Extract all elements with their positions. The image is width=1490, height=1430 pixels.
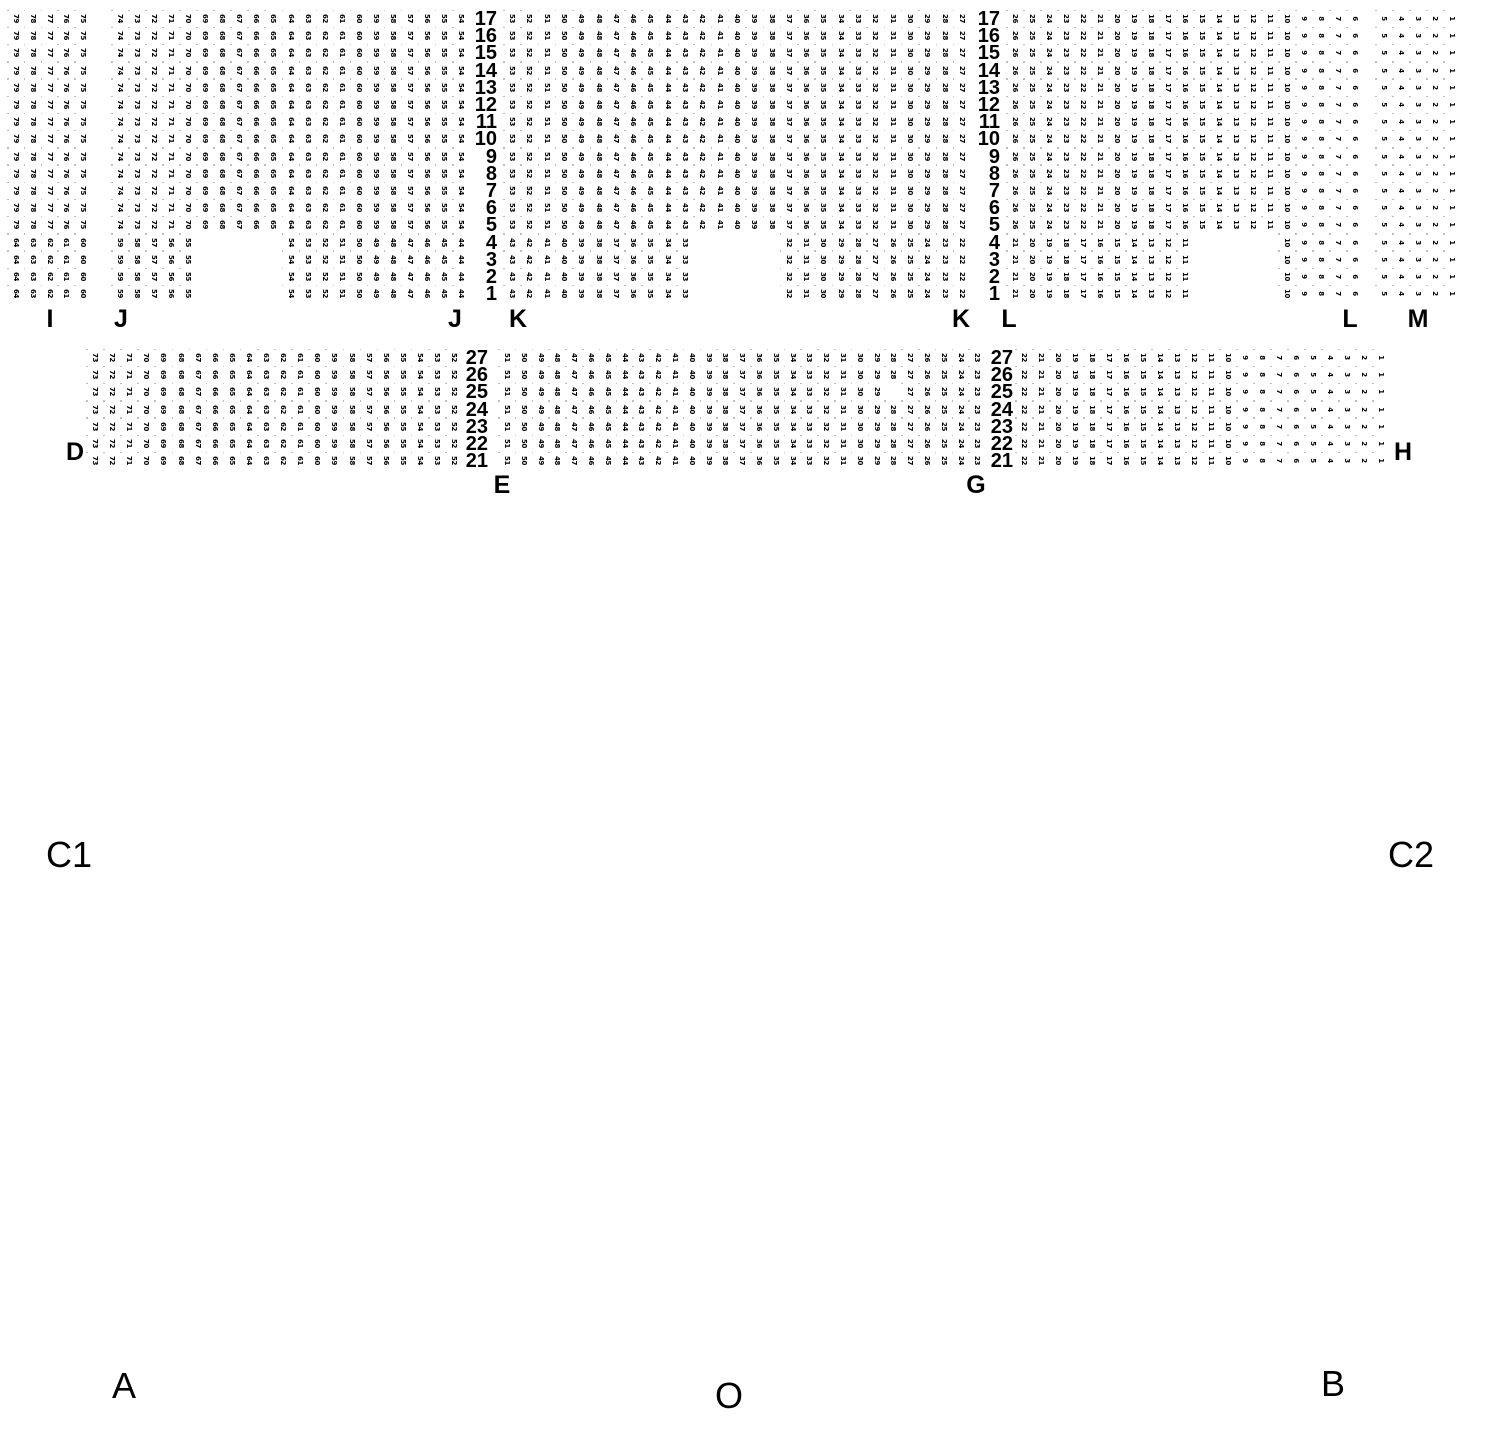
seat-EG-r23-n44[interactable]: 44 (617, 420, 632, 433)
area-label-c1[interactable]: C1 (46, 837, 92, 873)
seat-D-r27-n55[interactable]: 55 (395, 351, 410, 364)
seat-J-r2-n55[interactable]: 55 (180, 270, 195, 283)
seat-K-r2-n22[interactable]: 22 (954, 270, 969, 283)
seat-J-r12-n62[interactable]: 62 (317, 98, 332, 111)
seat-I-r17-n76[interactable]: 76 (58, 12, 73, 25)
seat-J-r9-n56[interactable]: 56 (419, 150, 434, 163)
seat-EG-r23-n31[interactable]: 31 (835, 420, 850, 433)
seat-H-r27-n7[interactable]: 7 (1271, 351, 1286, 364)
seat-K-r10-n38[interactable]: 38 (764, 132, 779, 145)
seat-D-r22-n72[interactable]: 72 (104, 437, 119, 450)
seat-M-r9-n2[interactable]: 2 (1427, 150, 1442, 163)
seat-I-r13-n75[interactable]: 75 (75, 81, 90, 94)
seat-D-r25-n70[interactable]: 70 (138, 385, 153, 398)
seat-L-r9-n23[interactable]: 23 (1058, 150, 1073, 163)
seat-I-r6-n75[interactable]: 75 (75, 201, 90, 214)
seat-J-r8-n60[interactable]: 60 (351, 167, 366, 180)
seat-I-r17-n77[interactable]: 77 (42, 12, 57, 25)
seat-L-r5-n14[interactable]: 14 (1211, 218, 1226, 231)
seat-K-r11-n42[interactable]: 42 (694, 115, 709, 128)
seat-K-r15-n50[interactable]: 50 (556, 46, 571, 59)
seat-L-r11-n26[interactable]: 26 (1007, 115, 1022, 128)
seat-EG-r26-n41[interactable]: 41 (667, 368, 682, 381)
seat-EG-r22-n35[interactable]: 35 (768, 437, 783, 450)
seat-EG-r23-n45[interactable]: 45 (600, 420, 615, 433)
seat-L-r10-n19[interactable]: 19 (1126, 132, 1141, 145)
seat-H-r21-n9[interactable]: 9 (1237, 454, 1252, 467)
seat-L-r17-n12[interactable]: 12 (1245, 12, 1260, 25)
seat-EG-r21-n29[interactable]: 29 (869, 454, 884, 467)
seat-H-r26-n12[interactable]: 12 (1186, 368, 1201, 381)
seat-D-r25-n65[interactable]: 65 (224, 385, 239, 398)
seat-J-r14-n68[interactable]: 68 (214, 64, 229, 77)
seat-H-r23-n11[interactable]: 11 (1203, 420, 1218, 433)
seat-M-r11-n4[interactable]: 4 (1393, 115, 1408, 128)
seat-K-r4-n22[interactable]: 22 (954, 236, 969, 249)
seat-L-r3-n12[interactable]: 12 (1160, 253, 1175, 266)
seat-H-r23-n4[interactable]: 4 (1322, 420, 1337, 433)
seat-L-r6-n19[interactable]: 19 (1126, 201, 1141, 214)
seat-K-r7-n45[interactable]: 45 (642, 184, 657, 197)
seat-EG-r21-n50[interactable]: 50 (516, 454, 531, 467)
seat-M-r4-n3[interactable]: 3 (1410, 236, 1425, 249)
seat-L-r14-n23[interactable]: 23 (1058, 64, 1073, 77)
seat-K-r16-n38[interactable]: 38 (764, 29, 779, 42)
seat-I-r8-n78[interactable]: 78 (25, 167, 40, 180)
seat-J-r16-n73[interactable]: 73 (129, 29, 144, 42)
seat-J-r3-n52[interactable]: 52 (317, 253, 332, 266)
seat-L-r7-n16[interactable]: 16 (1177, 184, 1192, 197)
seat-J-r4-n56[interactable]: 56 (163, 236, 178, 249)
seat-K-r6-n47[interactable]: 47 (608, 201, 623, 214)
seat-L-r5-n19[interactable]: 19 (1126, 218, 1141, 231)
seat-M-r15-n3[interactable]: 3 (1410, 46, 1425, 59)
seat-EG-r25-n27[interactable]: 27 (902, 385, 917, 398)
seat-L-r2-n21[interactable]: 21 (1007, 270, 1022, 283)
seat-D-r25-n53[interactable]: 53 (429, 385, 444, 398)
seat-M-r4-n4[interactable]: 4 (1393, 236, 1408, 249)
seat-EG-r25-n29[interactable]: 29 (869, 385, 884, 398)
seat-H-r21-n3[interactable]: 3 (1339, 454, 1354, 467)
seat-I-r13-n78[interactable]: 78 (25, 81, 40, 94)
seat-J-r7-n72[interactable]: 72 (146, 184, 161, 197)
seat-J-r8-n69[interactable]: 69 (197, 167, 212, 180)
seat-H-r25-n3[interactable]: 3 (1339, 385, 1354, 398)
seat-I-r14-n78[interactable]: 78 (25, 64, 40, 77)
seat-K-r9-n40[interactable]: 40 (729, 150, 744, 163)
seat-D-r26-n58[interactable]: 58 (344, 368, 359, 381)
seat-K-r16-n51[interactable]: 51 (539, 29, 554, 42)
seat-K-r10-n29[interactable]: 29 (919, 132, 934, 145)
seat-D-r26-n56[interactable]: 56 (378, 368, 393, 381)
seat-L-r13-n10[interactable]: 10 (1279, 81, 1294, 94)
seat-M-r1-n3[interactable]: 3 (1410, 287, 1425, 300)
seat-K-r13-n40[interactable]: 40 (729, 81, 744, 94)
seat-K-r1-n40[interactable]: 40 (556, 287, 571, 300)
seat-J-r6-n62[interactable]: 62 (317, 201, 332, 214)
seat-H-r27-n13[interactable]: 13 (1169, 351, 1184, 364)
seat-K-r15-n53[interactable]: 53 (504, 46, 519, 59)
seat-D-r22-n62[interactable]: 62 (275, 437, 290, 450)
seat-K-r16-n29[interactable]: 29 (919, 29, 934, 42)
seat-J-r5-n66[interactable]: 66 (248, 218, 263, 231)
seat-K-r15-n44[interactable]: 44 (660, 46, 675, 59)
seat-L-r3-n7[interactable]: 7 (1330, 253, 1345, 266)
seat-K-r3-n33[interactable]: 33 (677, 253, 692, 266)
seat-K-r17-n44[interactable]: 44 (660, 12, 675, 25)
section-label-d-0[interactable]: D (66, 440, 84, 465)
seat-L-r1-n12[interactable]: 12 (1160, 287, 1175, 300)
seat-L-r13-n25[interactable]: 25 (1024, 81, 1039, 94)
seat-I-r3-n64[interactable]: 64 (8, 253, 23, 266)
seat-L-r11-n12[interactable]: 12 (1245, 115, 1260, 128)
seat-L-r6-n6[interactable]: 6 (1347, 201, 1362, 214)
seat-EG-r26-n49[interactable]: 49 (533, 368, 548, 381)
seat-L-r10-n9[interactable]: 9 (1296, 132, 1311, 145)
seat-D-r25-n64[interactable]: 64 (241, 385, 256, 398)
seat-D-r22-n52[interactable]: 52 (446, 437, 461, 450)
seat-K-r11-n52[interactable]: 52 (521, 115, 536, 128)
seat-K-r1-n34[interactable]: 34 (660, 287, 675, 300)
seat-I-r11-n79[interactable]: 79 (8, 115, 23, 128)
seat-J-r10-n72[interactable]: 72 (146, 132, 161, 145)
seat-H-r26-n10[interactable]: 10 (1220, 368, 1235, 381)
seat-L-r1-n10[interactable]: 10 (1279, 287, 1294, 300)
seat-J-r8-n54[interactable]: 54 (453, 167, 468, 180)
seat-K-r16-n28[interactable]: 28 (937, 29, 952, 42)
seat-L-r3-n16[interactable]: 16 (1092, 253, 1107, 266)
seat-J-r14-n69[interactable]: 69 (197, 64, 212, 77)
seat-J-r7-n58[interactable]: 58 (385, 184, 400, 197)
seat-K-r4-n25[interactable]: 25 (902, 236, 917, 249)
seat-K-r17-n40[interactable]: 40 (729, 12, 744, 25)
seat-L-r14-n24[interactable]: 24 (1041, 64, 1056, 77)
seat-K-r13-n53[interactable]: 53 (504, 81, 519, 94)
seat-J-r2-n49[interactable]: 49 (368, 270, 383, 283)
seat-D-r25-n61[interactable]: 61 (292, 385, 307, 398)
seat-L-r6-n23[interactable]: 23 (1058, 201, 1073, 214)
seat-K-r1-n38[interactable]: 38 (591, 287, 606, 300)
seat-J-r13-n72[interactable]: 72 (146, 81, 161, 94)
seat-J-r14-n73[interactable]: 73 (129, 64, 144, 77)
seat-K-r5-n28[interactable]: 28 (937, 218, 952, 231)
seat-K-r10-n50[interactable]: 50 (556, 132, 571, 145)
seat-J-r9-n74[interactable]: 74 (112, 150, 127, 163)
seat-L-r9-n17[interactable]: 17 (1160, 150, 1175, 163)
seat-H-r24-n4[interactable]: 4 (1322, 403, 1337, 416)
seat-L-r16-n6[interactable]: 6 (1347, 29, 1362, 42)
seat-K-r9-n30[interactable]: 30 (902, 150, 917, 163)
seat-K-r12-n37[interactable]: 37 (781, 98, 796, 111)
seat-K-r10-n41[interactable]: 41 (712, 132, 727, 145)
seat-K-r13-n48[interactable]: 48 (591, 81, 606, 94)
seat-J-r11-n68[interactable]: 68 (214, 115, 229, 128)
seat-K-r17-n48[interactable]: 48 (591, 12, 606, 25)
seat-J-r14-n67[interactable]: 67 (231, 64, 246, 77)
seat-EG-r22-n38[interactable]: 38 (717, 437, 732, 450)
seat-J-r16-n58[interactable]: 58 (385, 29, 400, 42)
seat-K-r11-n50[interactable]: 50 (556, 115, 571, 128)
seat-EG-r24-n39[interactable]: 39 (701, 403, 716, 416)
seat-K-r8-n35[interactable]: 35 (815, 167, 830, 180)
seat-D-r22-n65[interactable]: 65 (224, 437, 239, 450)
seat-K-r14-n48[interactable]: 48 (591, 64, 606, 77)
seat-J-r1-n44[interactable]: 44 (453, 287, 468, 300)
seat-L-r1-n14[interactable]: 14 (1126, 287, 1141, 300)
seat-J-r12-n74[interactable]: 74 (112, 98, 127, 111)
seat-J-r17-n61[interactable]: 61 (334, 12, 349, 25)
seat-L-r15-n9[interactable]: 9 (1296, 46, 1311, 59)
seat-L-r17-n25[interactable]: 25 (1024, 12, 1039, 25)
seat-L-r12-n9[interactable]: 9 (1296, 98, 1311, 111)
seat-EG-r27-n24[interactable]: 24 (953, 351, 968, 364)
seat-L-r6-n15[interactable]: 15 (1194, 201, 1209, 214)
seat-EG-r21-n44[interactable]: 44 (617, 454, 632, 467)
seat-L-r7-n6[interactable]: 6 (1347, 184, 1362, 197)
seat-L-r7-n20[interactable]: 20 (1109, 184, 1124, 197)
seat-L-r14-n9[interactable]: 9 (1296, 64, 1311, 77)
seat-L-r1-n7[interactable]: 7 (1330, 287, 1345, 300)
seat-EG-r21-n23[interactable]: 23 (969, 454, 984, 467)
seat-J-r2-n50[interactable]: 50 (351, 270, 366, 283)
seat-K-r16-n48[interactable]: 48 (591, 29, 606, 42)
seat-D-r27-n62[interactable]: 62 (275, 351, 290, 364)
seat-L-r6-n11[interactable]: 11 (1262, 201, 1277, 214)
seat-EG-r27-n39[interactable]: 39 (701, 351, 716, 364)
seat-K-r12-n49[interactable]: 49 (573, 98, 588, 111)
seat-H-r27-n11[interactable]: 11 (1203, 351, 1218, 364)
seat-H-r27-n1[interactable]: 1 (1373, 351, 1388, 364)
seat-L-r14-n21[interactable]: 21 (1092, 64, 1107, 77)
seat-J-r2-n46[interactable]: 46 (419, 270, 434, 283)
seat-L-r13-n18[interactable]: 18 (1143, 81, 1158, 94)
seat-L-r13-n6[interactable]: 6 (1347, 81, 1362, 94)
seat-H-r22-n12[interactable]: 12 (1186, 437, 1201, 450)
seat-K-r5-n27[interactable]: 27 (954, 218, 969, 231)
seat-EG-r26-n46[interactable]: 46 (583, 368, 598, 381)
seat-M-r7-n2[interactable]: 2 (1427, 184, 1442, 197)
seat-L-r10-n26[interactable]: 26 (1007, 132, 1022, 145)
seat-J-r15-n56[interactable]: 56 (419, 46, 434, 59)
seat-M-r3-n2[interactable]: 2 (1427, 253, 1442, 266)
seat-D-r23-n72[interactable]: 72 (104, 420, 119, 433)
seat-L-r15-n13[interactable]: 13 (1228, 46, 1243, 59)
seat-J-r16-n68[interactable]: 68 (214, 29, 229, 42)
seat-K-r9-n27[interactable]: 27 (954, 150, 969, 163)
seat-K-r2-n25[interactable]: 25 (902, 270, 917, 283)
seat-L-r1-n16[interactable]: 16 (1092, 287, 1107, 300)
seat-J-r17-n68[interactable]: 68 (214, 12, 229, 25)
seat-K-r1-n23[interactable]: 23 (937, 287, 952, 300)
seat-J-r8-n66[interactable]: 66 (248, 167, 263, 180)
seat-EG-r27-n35[interactable]: 35 (768, 351, 783, 364)
seat-H-r27-n10[interactable]: 10 (1220, 351, 1235, 364)
seat-EG-r24-n28[interactable]: 28 (885, 403, 900, 416)
seat-K-r17-n52[interactable]: 52 (521, 12, 536, 25)
seat-H-r23-n16[interactable]: 16 (1118, 420, 1133, 433)
seat-K-r2-n38[interactable]: 38 (591, 270, 606, 283)
seat-M-r16-n1[interactable]: 1 (1444, 29, 1459, 42)
seat-J-r14-n58[interactable]: 58 (385, 64, 400, 77)
seat-L-r14-n11[interactable]: 11 (1262, 64, 1277, 77)
seat-J-r17-n74[interactable]: 74 (112, 12, 127, 25)
seat-M-r16-n3[interactable]: 3 (1410, 29, 1425, 42)
seat-K-r6-n49[interactable]: 49 (573, 201, 588, 214)
seat-EG-r22-n33[interactable]: 33 (801, 437, 816, 450)
seat-J-r13-n58[interactable]: 58 (385, 81, 400, 94)
seat-L-r11-n19[interactable]: 19 (1126, 115, 1141, 128)
seat-K-r2-n30[interactable]: 30 (815, 270, 830, 283)
seat-J-r14-n57[interactable]: 57 (402, 64, 417, 77)
seat-EG-r25-n50[interactable]: 50 (516, 385, 531, 398)
seat-D-r25-n73[interactable]: 73 (87, 385, 102, 398)
seat-J-r14-n55[interactable]: 55 (436, 64, 451, 77)
seat-D-r23-n66[interactable]: 66 (207, 420, 222, 433)
seat-D-r21-n68[interactable]: 68 (173, 454, 188, 467)
seat-K-r8-n53[interactable]: 53 (504, 167, 519, 180)
seat-L-r9-n11[interactable]: 11 (1262, 150, 1277, 163)
seat-K-r16-n35[interactable]: 35 (815, 29, 830, 42)
seat-K-r14-n38[interactable]: 38 (764, 64, 779, 77)
seat-J-r7-n69[interactable]: 69 (197, 184, 212, 197)
seat-K-r11-n51[interactable]: 51 (539, 115, 554, 128)
seat-D-r23-n71[interactable]: 71 (121, 420, 136, 433)
seat-J-r11-n57[interactable]: 57 (402, 115, 417, 128)
seat-L-r17-n15[interactable]: 15 (1194, 12, 1209, 25)
seat-I-r7-n76[interactable]: 76 (58, 184, 73, 197)
seat-K-r11-n53[interactable]: 53 (504, 115, 519, 128)
seat-K-r16-n39[interactable]: 39 (746, 29, 761, 42)
seat-J-r1-n49[interactable]: 49 (368, 287, 383, 300)
seat-I-r3-n61[interactable]: 61 (58, 253, 73, 266)
seat-L-r16-n24[interactable]: 24 (1041, 29, 1056, 42)
seat-D-r27-n54[interactable]: 54 (412, 351, 427, 364)
seat-D-r27-n56[interactable]: 56 (378, 351, 393, 364)
seat-I-r16-n76[interactable]: 76 (58, 29, 73, 42)
seat-L-r11-n17[interactable]: 17 (1160, 115, 1175, 128)
seat-J-r12-n73[interactable]: 73 (129, 98, 144, 111)
seat-J-r16-n54[interactable]: 54 (453, 29, 468, 42)
seat-M-r6-n4[interactable]: 4 (1393, 201, 1408, 214)
seat-J-r1-n45[interactable]: 45 (436, 287, 451, 300)
seat-EG-r21-n47[interactable]: 47 (566, 454, 581, 467)
seat-K-r8-n41[interactable]: 41 (712, 167, 727, 180)
seat-K-r10-n36[interactable]: 36 (798, 132, 813, 145)
seat-K-r8-n39[interactable]: 39 (746, 167, 761, 180)
seat-K-r2-n43[interactable]: 43 (504, 270, 519, 283)
seat-L-r5-n9[interactable]: 9 (1296, 218, 1311, 231)
seat-J-r4-n55[interactable]: 55 (180, 236, 195, 249)
area-label-o[interactable]: O (715, 1378, 743, 1414)
seat-D-r23-n64[interactable]: 64 (241, 420, 256, 433)
seat-K-r17-n46[interactable]: 46 (625, 12, 640, 25)
seat-D-r25-n57[interactable]: 57 (361, 385, 376, 398)
seat-L-r1-n6[interactable]: 6 (1347, 287, 1362, 300)
seat-J-r5-n59[interactable]: 59 (368, 218, 383, 231)
seat-D-r23-n60[interactable]: 60 (309, 420, 324, 433)
seat-EG-r22-n34[interactable]: 34 (785, 437, 800, 450)
seat-K-r4-n36[interactable]: 36 (625, 236, 640, 249)
seat-EG-r21-n34[interactable]: 34 (785, 454, 800, 467)
seat-L-r8-n6[interactable]: 6 (1347, 167, 1362, 180)
seat-J-r8-n55[interactable]: 55 (436, 167, 451, 180)
seat-I-r7-n78[interactable]: 78 (25, 184, 40, 197)
seat-L-r9-n9[interactable]: 9 (1296, 150, 1311, 163)
seat-L-r10-n23[interactable]: 23 (1058, 132, 1073, 145)
seat-J-r3-n56[interactable]: 56 (163, 253, 178, 266)
seat-M-r1-n4[interactable]: 4 (1393, 287, 1408, 300)
seat-H-r21-n12[interactable]: 12 (1186, 454, 1201, 467)
seat-M-r6-n5[interactable]: 5 (1376, 201, 1391, 214)
seat-EG-r22-n32[interactable]: 32 (818, 437, 833, 450)
seat-M-r3-n4[interactable]: 4 (1393, 253, 1408, 266)
seat-D-r24-n52[interactable]: 52 (446, 403, 461, 416)
seat-D-r23-n59[interactable]: 59 (326, 420, 341, 433)
seat-J-r13-n60[interactable]: 60 (351, 81, 366, 94)
seat-K-r5-n31[interactable]: 31 (885, 218, 900, 231)
seat-H-r25-n1[interactable]: 1 (1373, 385, 1388, 398)
seat-K-r14-n33[interactable]: 33 (850, 64, 865, 77)
seat-J-r5-n67[interactable]: 67 (231, 218, 246, 231)
seat-M-r3-n5[interactable]: 5 (1376, 253, 1391, 266)
seat-K-r1-n25[interactable]: 25 (902, 287, 917, 300)
seat-D-r24-n66[interactable]: 66 (207, 403, 222, 416)
seat-J-r17-n62[interactable]: 62 (317, 12, 332, 25)
area-label-a[interactable]: A (112, 1368, 136, 1404)
seat-K-r8-n45[interactable]: 45 (642, 167, 657, 180)
seat-M-r11-n1[interactable]: 1 (1444, 115, 1459, 128)
seat-K-r14-n32[interactable]: 32 (867, 64, 882, 77)
seat-K-r17-n49[interactable]: 49 (573, 12, 588, 25)
seat-K-r15-n47[interactable]: 47 (608, 46, 623, 59)
section-label-k-3[interactable]: K (509, 307, 527, 332)
seat-D-r27-n57[interactable]: 57 (361, 351, 376, 364)
seat-J-r3-n44[interactable]: 44 (453, 253, 468, 266)
seat-K-r16-n52[interactable]: 52 (521, 29, 536, 42)
seat-L-r12-n19[interactable]: 19 (1126, 98, 1141, 111)
seat-L-r15-n22[interactable]: 22 (1075, 46, 1090, 59)
seat-K-r10-n43[interactable]: 43 (677, 132, 692, 145)
seat-L-r12-n15[interactable]: 15 (1194, 98, 1209, 111)
seat-K-r15-n32[interactable]: 32 (867, 46, 882, 59)
seat-H-r23-n22[interactable]: 22 (1016, 420, 1031, 433)
seat-L-r7-n7[interactable]: 7 (1330, 184, 1345, 197)
seat-EG-r22-n51[interactable]: 51 (499, 437, 514, 450)
seat-EG-r23-n25[interactable]: 25 (936, 420, 951, 433)
seat-J-r17-n64[interactable]: 64 (283, 12, 298, 25)
seat-J-r4-n53[interactable]: 53 (300, 236, 315, 249)
seat-J-r7-n66[interactable]: 66 (248, 184, 263, 197)
seat-J-r16-n72[interactable]: 72 (146, 29, 161, 42)
seat-EG-r25-n45[interactable]: 45 (600, 385, 615, 398)
seat-J-r5-n54[interactable]: 54 (453, 218, 468, 231)
seat-J-r12-n59[interactable]: 59 (368, 98, 383, 111)
seat-H-r27-n6[interactable]: 6 (1288, 351, 1303, 364)
seat-K-r6-n43[interactable]: 43 (677, 201, 692, 214)
seat-K-r7-n39[interactable]: 39 (746, 184, 761, 197)
seat-L-r4-n21[interactable]: 21 (1007, 236, 1022, 249)
seat-D-r27-n69[interactable]: 69 (155, 351, 170, 364)
seat-K-r13-n51[interactable]: 51 (539, 81, 554, 94)
seat-J-r10-n59[interactable]: 59 (368, 132, 383, 145)
seat-J-r12-n57[interactable]: 57 (402, 98, 417, 111)
seat-H-r26-n8[interactable]: 8 (1254, 368, 1269, 381)
seat-L-r2-n9[interactable]: 9 (1296, 270, 1311, 283)
seat-L-r14-n8[interactable]: 8 (1313, 64, 1328, 77)
seat-H-r27-n12[interactable]: 12 (1186, 351, 1201, 364)
seat-K-r12-n51[interactable]: 51 (539, 98, 554, 111)
seat-J-r7-n70[interactable]: 70 (180, 184, 195, 197)
